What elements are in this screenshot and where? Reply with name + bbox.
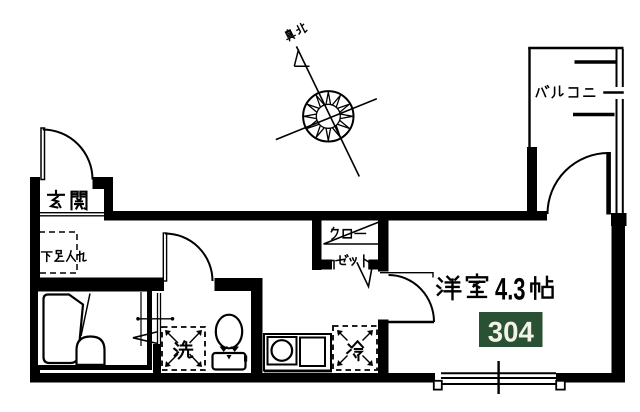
svg-text:304: 304 bbox=[488, 316, 534, 348]
svg-text:4.3: 4.3 bbox=[495, 272, 526, 307]
